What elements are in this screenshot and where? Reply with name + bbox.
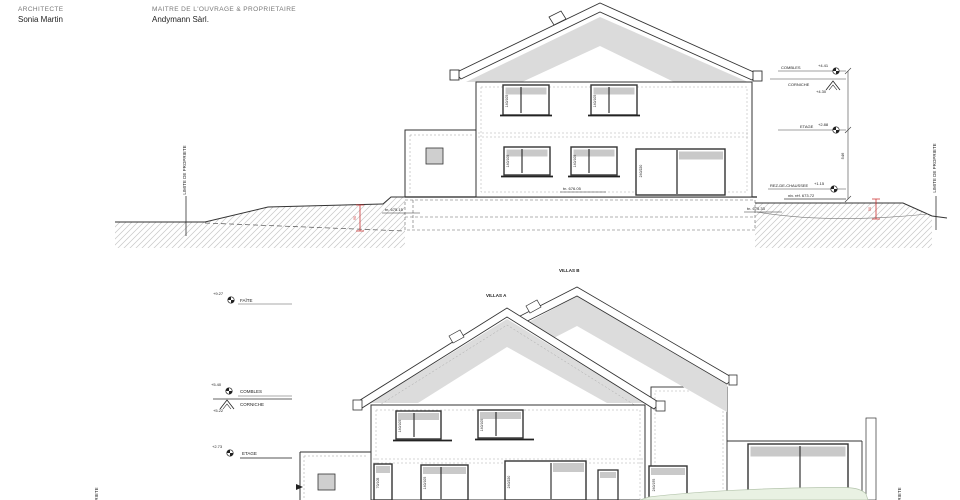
villa-a-narrow-window xyxy=(598,470,618,500)
eave-cap-left xyxy=(450,70,459,80)
annex-left xyxy=(405,130,476,197)
red-dim-value: 90 xyxy=(353,216,357,220)
villa-b-title: VILLAS B xyxy=(559,268,580,273)
combles-label: COMBLES xyxy=(240,389,262,394)
window-size-label: 140/105 xyxy=(398,420,402,433)
window-size-label: 140/105 xyxy=(573,155,577,168)
sliding-door: 240/220 xyxy=(636,149,725,195)
villa-a-window-double: 140/105 xyxy=(421,465,468,500)
property-limit-label: LIMITE DE PROPRIETE xyxy=(932,143,937,192)
villa-a-door: 240/220 xyxy=(505,461,586,500)
door-size-label: 240/220 xyxy=(507,476,511,489)
level-mark-icon xyxy=(226,388,232,394)
villa-a-title: VILLAS A xyxy=(486,293,507,298)
level-mark-icon xyxy=(833,68,839,74)
top-elevation: 140/105 140/105 140/105 xyxy=(115,3,947,248)
villa-b-eave-cap xyxy=(729,375,737,385)
corniche-label: CORNICHE xyxy=(788,82,810,87)
window-size-label: 140/105 xyxy=(593,95,597,108)
villa-a-eave-cap-right xyxy=(656,401,665,411)
window-gf-1: 140/105 xyxy=(501,147,553,177)
faite-value: +9.27 xyxy=(213,291,224,296)
annex-left-bottom xyxy=(296,452,371,500)
tn-right: tn. 675.33 xyxy=(747,206,766,211)
terrain-right-hatch xyxy=(755,203,932,248)
eave-cap-right xyxy=(753,71,762,81)
elevation-drawings: 140/105 140/105 140/105 xyxy=(0,0,960,500)
tn-center: tn. 676.05 xyxy=(563,186,582,191)
level-mark-icon xyxy=(228,297,234,303)
annex-window xyxy=(318,474,335,490)
etage-label: ETAGE xyxy=(800,124,814,129)
combles-value: +4.41 xyxy=(818,63,829,68)
property-limit-label: LIMITE DE PROPRIETE xyxy=(94,487,99,500)
height-dim-value: 546 xyxy=(840,152,845,159)
etage-label: ETAGE xyxy=(242,451,257,456)
level-mark-icon xyxy=(227,450,233,456)
rez-value: +1.15 xyxy=(814,181,825,186)
corniche-label: CORNICHE xyxy=(240,402,264,407)
property-limit-label: LIMITE DE PROPRIETE xyxy=(897,487,902,500)
villa-a-window-small: 70/105 xyxy=(374,464,392,500)
door-size-label: 240/220 xyxy=(639,165,643,178)
faite-label: FAÎTE xyxy=(240,297,253,303)
combles-label: COMBLES xyxy=(781,65,801,70)
excavation-outline xyxy=(405,200,755,230)
window-size-label: 140/105 xyxy=(505,95,509,108)
level-mark-icon xyxy=(833,127,839,133)
level-annotations: COMBLES +4.41 CORNICHE +4.30 ETAGE +2.88… xyxy=(768,63,851,202)
etage-value: +2.88 xyxy=(818,122,829,127)
etage-value: +2.73 xyxy=(212,444,223,449)
window-upper-1: 140/105 xyxy=(500,85,552,116)
villa-a-eave-cap-left xyxy=(353,400,362,410)
window-size-label: 140/105 xyxy=(480,419,484,432)
window-size-label: 70/105 xyxy=(376,478,380,489)
corniche-value: +5.22 xyxy=(213,408,224,413)
property-limit-label: LIMITE DE PROPRIETE xyxy=(182,145,187,194)
level-mark-icon xyxy=(831,186,837,192)
rez-label: REZ-DE-CHAUSSEE xyxy=(770,183,809,188)
annex-window xyxy=(426,148,443,164)
drawing-sheet: ARCHITECTE Sonia Martin MAITRE DE L'OUVR… xyxy=(0,0,960,500)
window-upper-2: 140/105 xyxy=(588,85,640,116)
window-size-label: 140/105 xyxy=(506,155,510,168)
window-size-label: 140/105 xyxy=(423,477,427,490)
niv-ref: niv. réf. 673.72 xyxy=(788,193,815,198)
corniche-value: +4.30 xyxy=(816,89,827,94)
window-gf-2: 140/105 xyxy=(568,147,620,177)
tn-left: tn. 675.15 xyxy=(385,207,404,212)
bottom-level-annotations: +9.27 FAÎTE +5.40 COMBLES CORNICHE +5.22… xyxy=(211,291,292,458)
combles-value: +5.40 xyxy=(211,382,222,387)
bottom-elevation: 240/195 140/105 xyxy=(94,268,902,500)
cornice-mark-icon xyxy=(826,81,840,90)
property-limit-right: LIMITE DE PROPRIETE xyxy=(932,143,937,230)
window-size-label: 240/195 xyxy=(652,479,656,492)
red-dim-value: 50 xyxy=(868,207,872,211)
